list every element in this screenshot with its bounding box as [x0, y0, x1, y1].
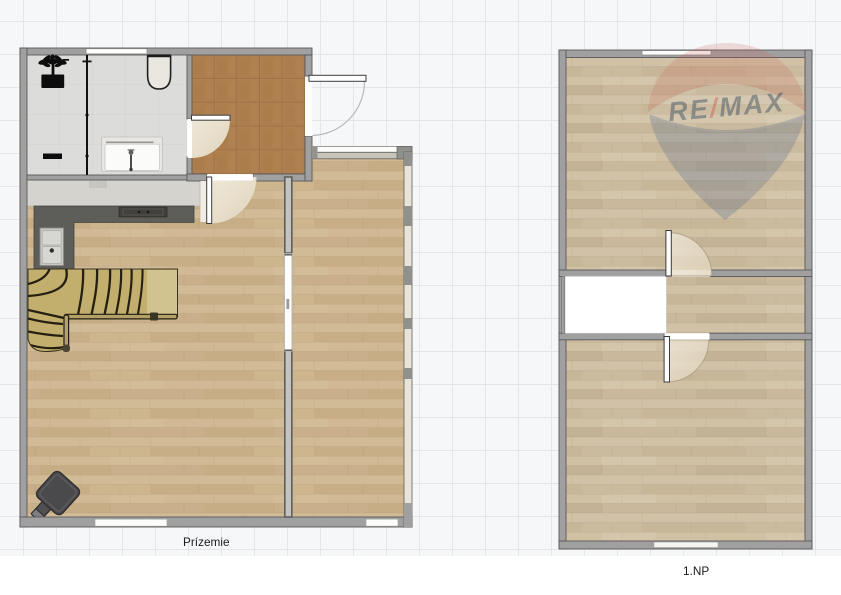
- svg-text:Prízemie: Prízemie: [183, 535, 230, 549]
- svg-text:1.NP: 1.NP: [683, 564, 709, 578]
